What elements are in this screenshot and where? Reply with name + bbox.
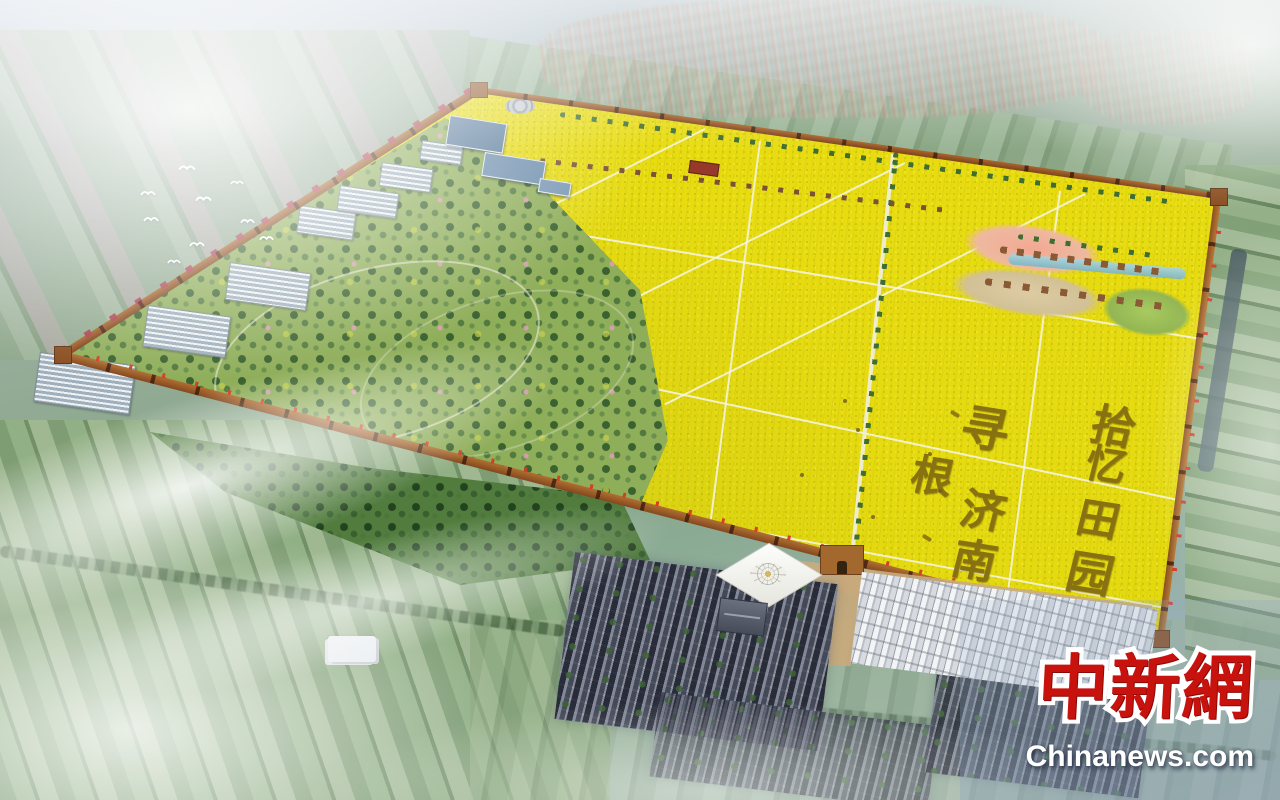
temple-hall (716, 597, 768, 637)
field-speck (843, 399, 847, 403)
corner-tower (470, 82, 488, 98)
bird-icon (240, 216, 255, 224)
aerial-scene: 寻 根 济 南 拾 忆 田 园 (0, 0, 1280, 800)
bird-icon (189, 239, 205, 247)
plaza-sun-motif (750, 563, 786, 585)
field-speck (871, 515, 875, 519)
field-speck (800, 473, 804, 477)
bird-icon (195, 193, 212, 202)
field-speck (856, 428, 860, 432)
bird-icon (167, 257, 181, 264)
corner-tower (54, 346, 72, 364)
bird-icon (140, 188, 156, 196)
gate-tower (820, 545, 864, 575)
field-speck (928, 452, 932, 456)
distant-village (540, 0, 1110, 118)
distant-hamlet (1080, 30, 1255, 125)
bird-icon (143, 214, 159, 222)
bird-icon (178, 162, 196, 171)
corner-tower (1210, 188, 1228, 206)
bird-icon (230, 178, 244, 185)
field-speck (938, 489, 942, 493)
bird-icon (259, 233, 274, 241)
white-farm-building (328, 636, 376, 662)
